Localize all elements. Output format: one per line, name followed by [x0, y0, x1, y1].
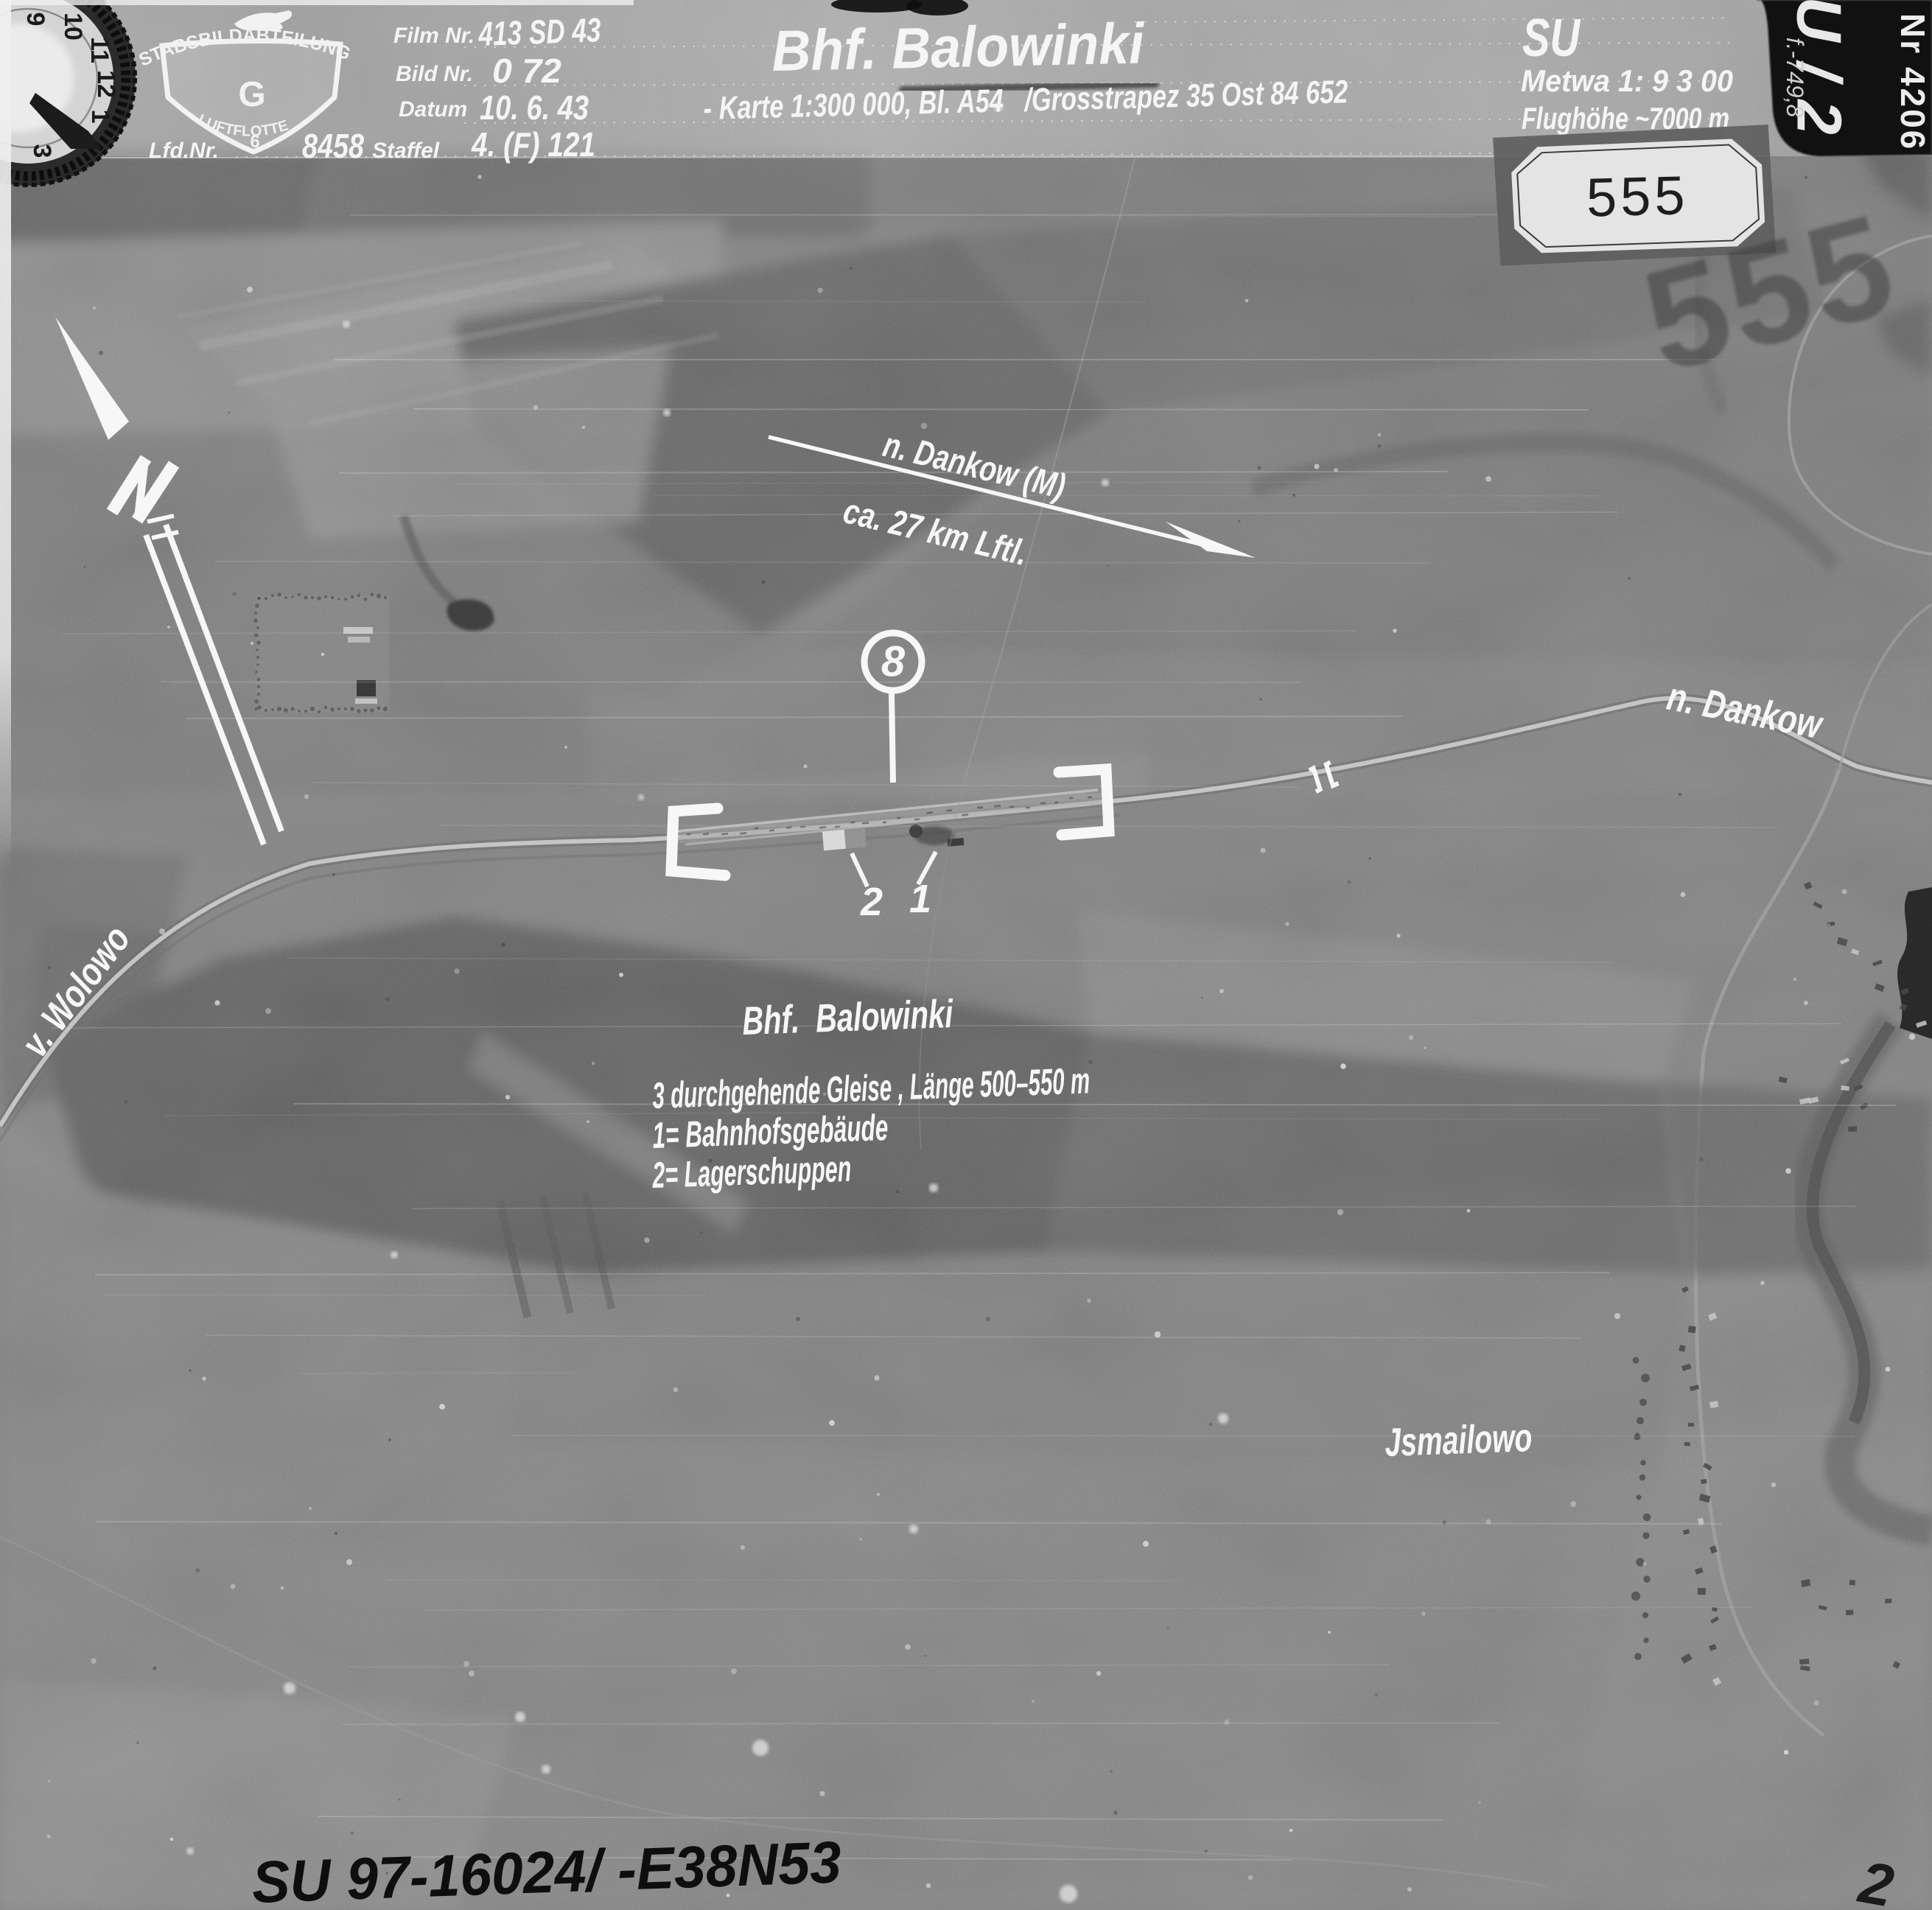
svg-text:Jsmailowo: Jsmailowo	[1384, 1416, 1533, 1465]
svg-text:2: 2	[860, 880, 883, 924]
svg-text:Bhf. Balowinki: Bhf. Balowinki	[741, 992, 954, 1043]
svg-text:6: 6	[250, 132, 259, 152]
svg-text:10. 6. 43: 10. 6. 43	[480, 88, 589, 127]
svg-text:Staffel: Staffel	[372, 139, 440, 163]
svg-text:413 SD 43: 413 SD 43	[477, 10, 602, 53]
svg-text:f.-749,8: f.-749,8	[1782, 38, 1808, 118]
svg-text:SU: SU	[1522, 9, 1581, 68]
svg-text:1: 1	[86, 110, 114, 124]
svg-text:1: 1	[909, 877, 931, 921]
svg-text:4. (F) 121: 4. (F) 121	[471, 125, 595, 164]
svg-text:10: 10	[59, 13, 87, 41]
svg-text:Film Nr.: Film Nr.	[393, 24, 475, 48]
svg-text:11: 11	[85, 37, 113, 63]
svg-text:8: 8	[881, 637, 906, 685]
svg-text:Lfd.Nr.: Lfd.Nr.	[149, 139, 219, 163]
svg-text:2= Lagerschuppen: 2= Lagerschuppen	[651, 1148, 852, 1196]
svg-text:3: 3	[28, 144, 56, 158]
svg-text:1= Bahnhofsgebäude: 1= Bahnhofsgebäude	[651, 1107, 889, 1156]
svg-text:Bhf. Balowinki: Bhf. Balowinki	[771, 10, 1146, 83]
svg-text:12: 12	[92, 70, 120, 98]
svg-text:0 72: 0 72	[492, 52, 561, 90]
svg-text:G: G	[238, 75, 265, 114]
svg-text:555: 555	[1586, 164, 1690, 228]
svg-text:Metwa 1: 9 3 00: Metwa 1: 9 3 00	[1521, 63, 1733, 98]
svg-text:Datum: Datum	[399, 97, 467, 122]
svg-text:Nr 4206: Nr 4206	[1894, 13, 1932, 151]
svg-text:8458: 8458	[302, 127, 364, 165]
svg-text:9: 9	[21, 13, 49, 27]
svg-text:Bild Nr.: Bild Nr.	[396, 62, 473, 86]
